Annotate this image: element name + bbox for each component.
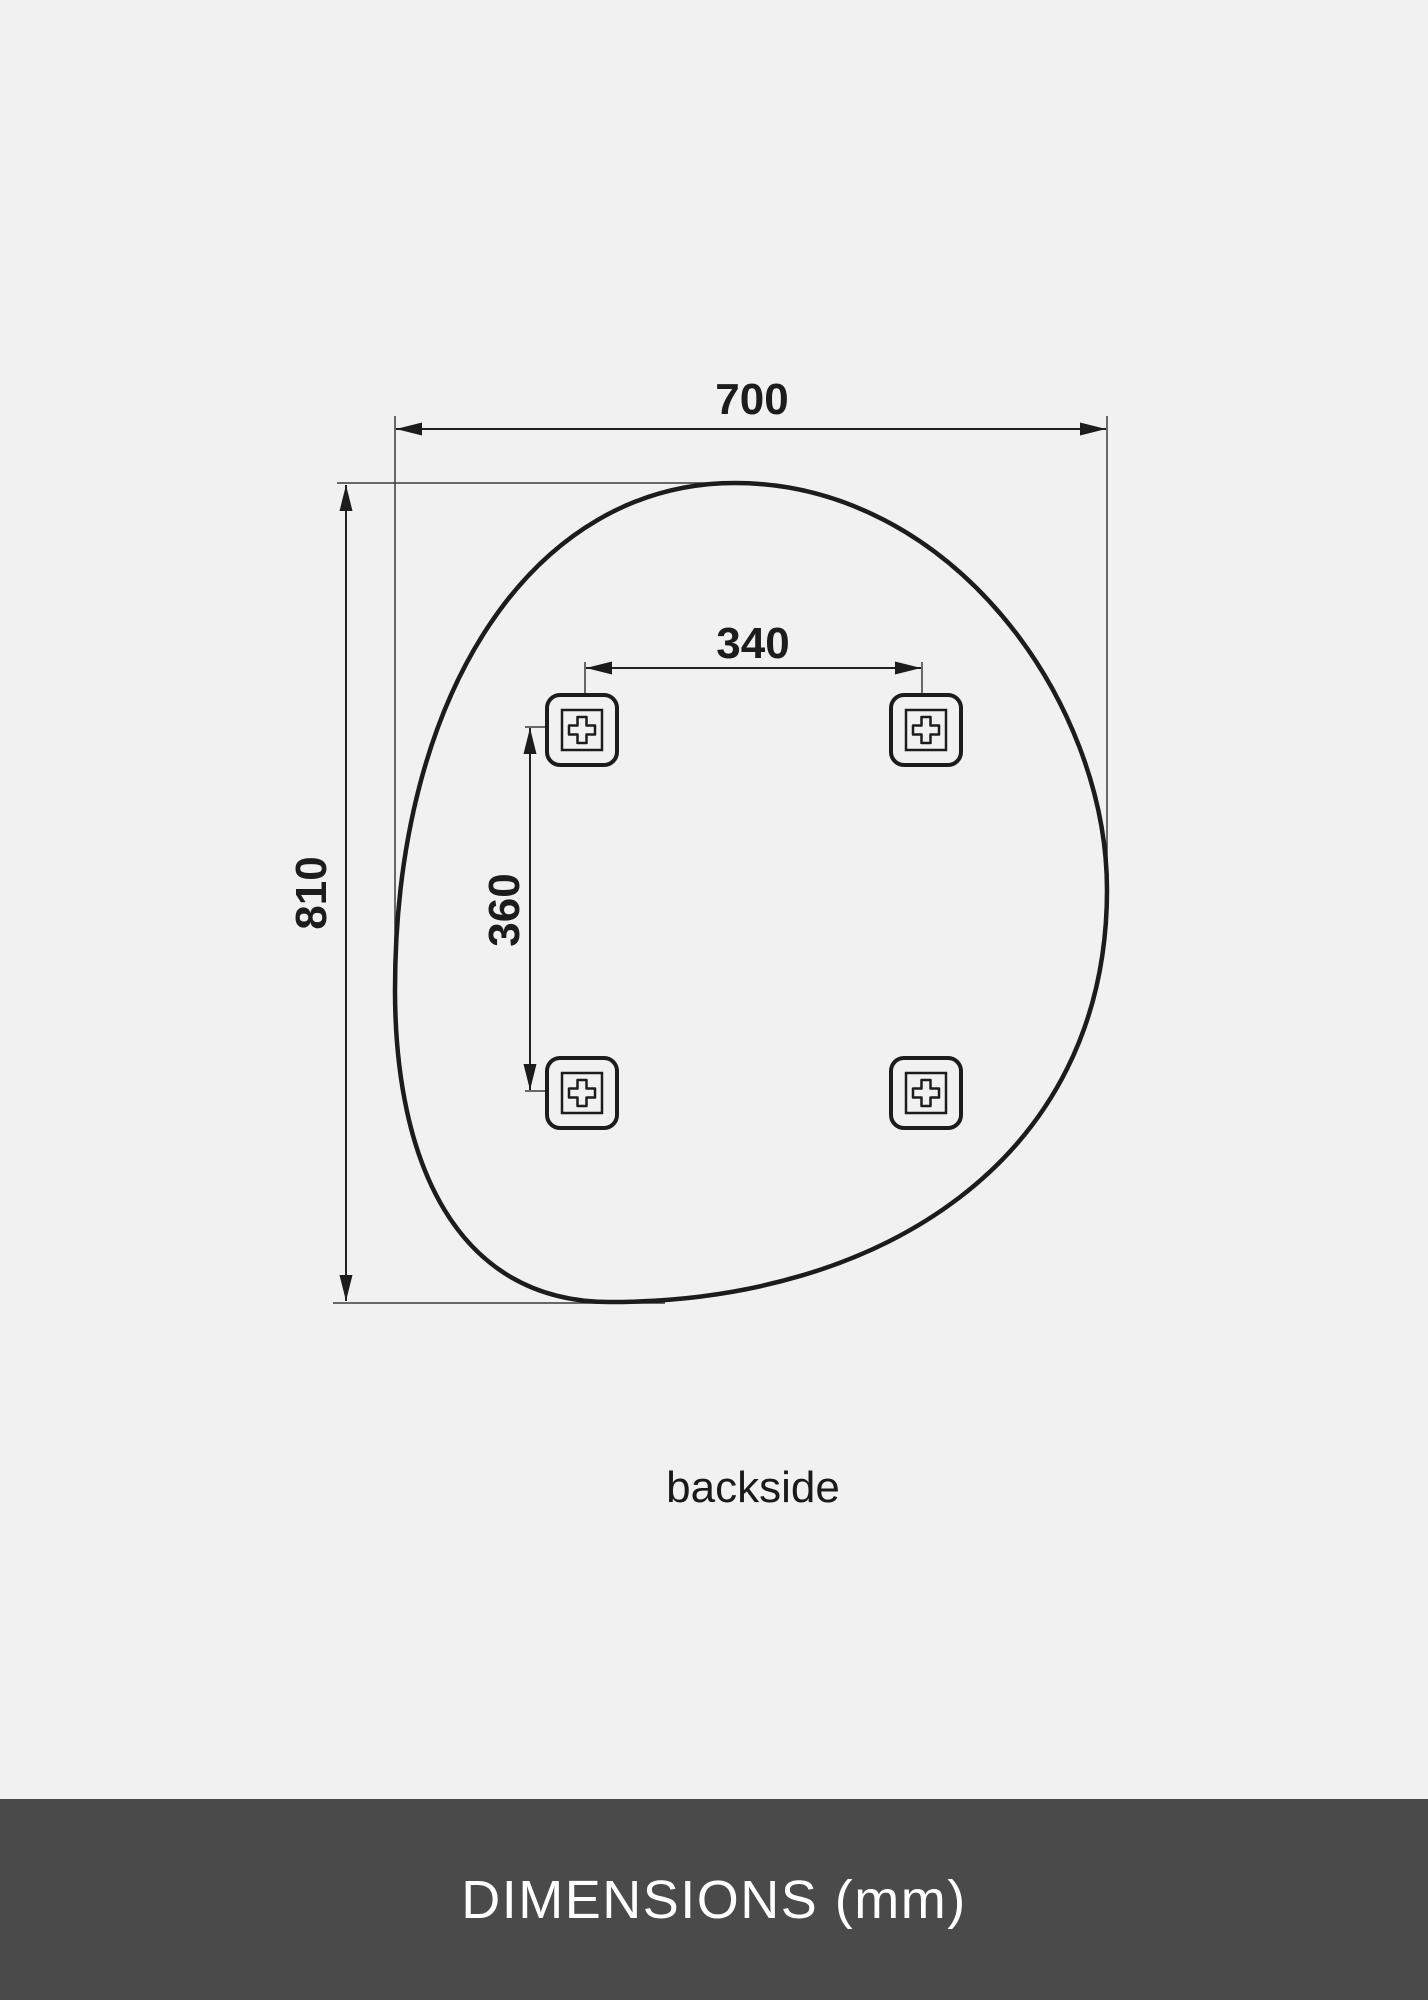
- dim-bracket-vertical-label: 360: [480, 873, 529, 946]
- arrowhead-bottom: [340, 1275, 353, 1301]
- footer-title: DIMENSIONS (mm): [461, 1869, 966, 1931]
- plus-icon: [913, 1080, 939, 1106]
- dim-height: 810: [287, 485, 353, 1301]
- bracket-outer: [891, 695, 961, 765]
- dim-width-label: 700: [715, 375, 788, 424]
- plus-icon: [913, 717, 939, 743]
- view-label: backside: [666, 1463, 840, 1512]
- dim-width: 700: [396, 375, 1106, 436]
- arrowhead-right: [1080, 423, 1106, 436]
- plus-icon: [569, 717, 595, 743]
- arrowhead-top: [340, 485, 353, 511]
- mounting-bracket-bottom-left: [547, 1058, 617, 1128]
- dim-height-label: 810: [287, 856, 336, 929]
- bracket-outer: [891, 1058, 961, 1128]
- arrowhead-top: [524, 728, 537, 754]
- arrowhead-left: [586, 662, 612, 675]
- dim-bracket-vertical: 360: [480, 727, 549, 1091]
- arrowhead-right: [895, 662, 921, 675]
- mounting-bracket-top-left: [547, 695, 617, 765]
- dim-bracket-horizontal: 340: [585, 619, 922, 697]
- footer-bar: DIMENSIONS (mm): [0, 1799, 1428, 2000]
- bracket-outer: [547, 1058, 617, 1128]
- mounting-bracket-bottom-right: [891, 1058, 961, 1128]
- bracket-outer: [547, 695, 617, 765]
- dim-bracket-horizontal-label: 340: [716, 619, 789, 668]
- product-dimension-image: 700 810 340 360: [0, 0, 1428, 2000]
- technical-drawing: 700 810 340 360: [0, 0, 1428, 1799]
- plus-icon: [569, 1080, 595, 1106]
- mounting-bracket-top-right: [891, 695, 961, 765]
- arrowhead-bottom: [524, 1064, 537, 1090]
- arrowhead-left: [396, 423, 422, 436]
